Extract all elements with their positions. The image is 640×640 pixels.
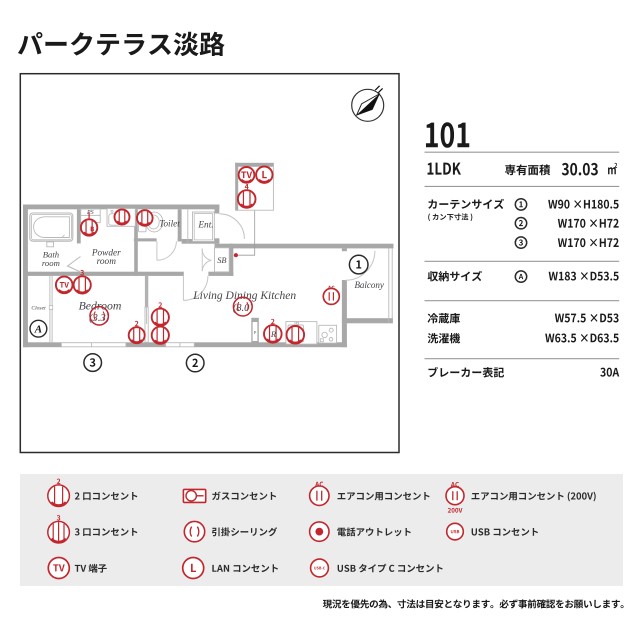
svg-text:room: room bbox=[97, 257, 117, 267]
svg-text:Closet: Closet bbox=[31, 305, 46, 311]
svg-text:room: room bbox=[42, 258, 60, 268]
svg-text:Bedroom: Bedroom bbox=[79, 298, 122, 312]
svg-text:R: R bbox=[270, 329, 277, 339]
svg-text:A: A bbox=[34, 324, 42, 336]
svg-text:SB: SB bbox=[217, 256, 226, 265]
svg-text:Balcony: Balcony bbox=[354, 280, 384, 290]
svg-text:PS: PS bbox=[86, 210, 94, 216]
svg-text:Living Dining Kitchen: Living Dining Kitchen bbox=[192, 290, 296, 302]
svg-text:Ent.: Ent. bbox=[197, 221, 213, 231]
svg-text:Toilet: Toilet bbox=[159, 219, 180, 229]
